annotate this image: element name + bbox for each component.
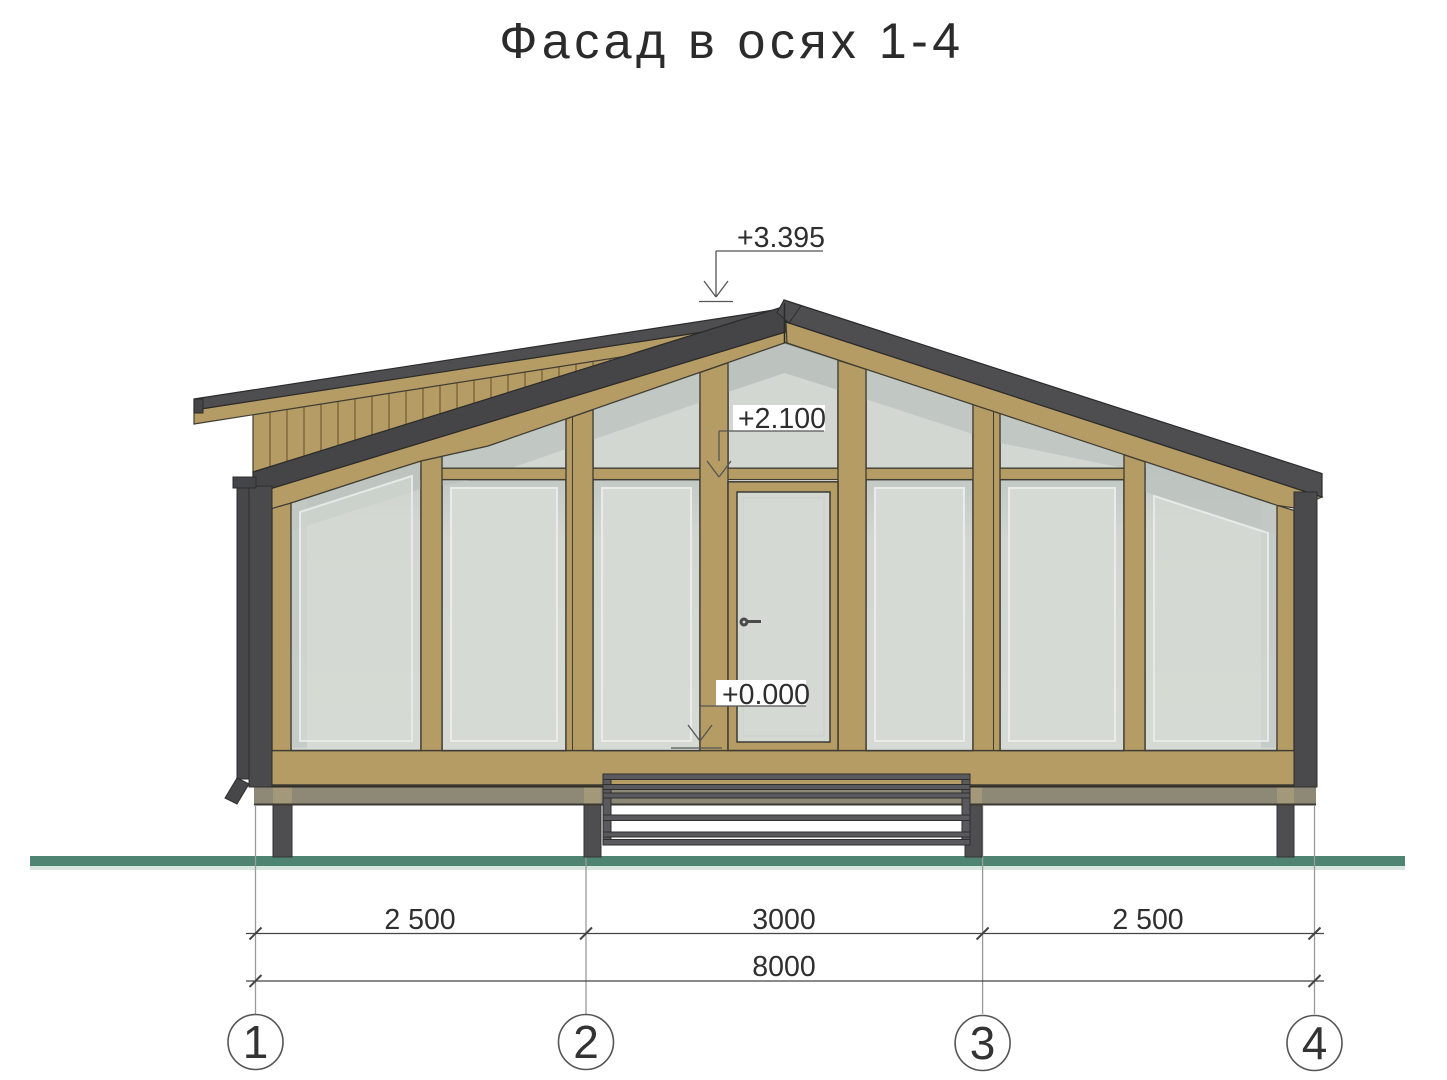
svg-text:+0.000: +0.000 [722,679,810,711]
svg-text:Фасад в осях 1-4: Фасад в осях 1-4 [499,13,964,69]
svg-text:3000: 3000 [752,904,815,936]
svg-text:+2.100: +2.100 [738,403,826,435]
svg-text:3: 3 [970,1017,996,1069]
svg-text:2: 2 [573,1016,599,1068]
svg-text:+3.395: +3.395 [737,222,825,254]
svg-text:8000: 8000 [752,951,815,983]
svg-text:1: 1 [243,1016,269,1068]
svg-text:4: 4 [1302,1017,1328,1069]
svg-text:2 500: 2 500 [384,904,455,936]
svg-text:2 500: 2 500 [1112,904,1183,936]
